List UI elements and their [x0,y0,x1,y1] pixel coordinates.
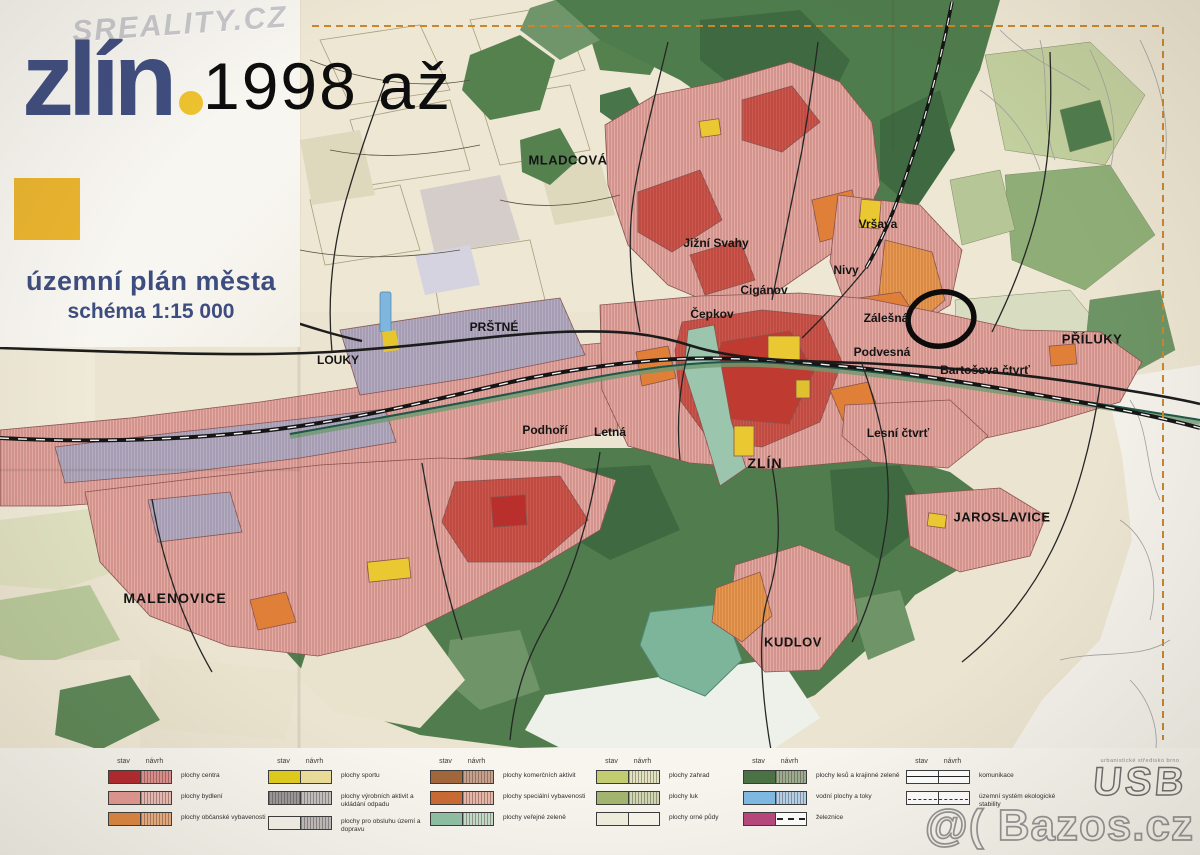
stav-header: stav [596,758,627,765]
navrh-swatch [463,792,494,804]
label-vrsava: Vršava [859,217,898,231]
navrh-swatch [463,813,494,825]
legend-item: plochy sportu [268,770,433,784]
navrh-header: návrh [139,758,170,765]
legend-item: plochy lesů a krajinné zeleně [743,770,899,784]
stav-swatch [431,771,463,783]
label-louky: LOUKY [317,353,359,367]
label-zalesna: Zálešná [864,311,909,325]
navrh-header: návrh [937,758,968,765]
map-poster-photo: MLADCOVÁ Jižní Svahy Vršava Nivy Cigánov… [0,0,1200,855]
stav-swatch-road [907,771,939,783]
legend-head: stav návrh [430,758,492,765]
navrh-swatch [301,817,332,829]
legend-head: stav návrh [596,758,658,765]
navrh-swatch [776,792,807,804]
legend-column-1: stav návrh plochy centra plochy bydlení … [108,758,266,833]
label-nivy: Nivy [833,263,858,277]
legend-head: stav návrh [906,758,968,765]
navrh-swatch [629,792,660,804]
legend-head: stav návrh [108,758,170,765]
stav-header: stav [430,758,461,765]
navrh-header: návrh [627,758,658,765]
label-lesni-ctvrt: Lesní čtvrť [867,426,929,440]
stav-swatch [109,792,141,804]
navrh-header: návrh [461,758,492,765]
legend-column-2: stav návrh plochy sportu plochy výrobníc… [268,758,433,842]
stav-header: stav [108,758,139,765]
zlin-logo-text: zlín [22,22,171,138]
stav-swatch [744,792,776,804]
zlin-logo-dot-icon [179,91,203,115]
stav-swatch [109,771,141,783]
legend-head: stav návrh [268,758,330,765]
legend-item: plochy výrobních aktivit a ukládání odpa… [268,791,433,809]
navrh-swatch [141,792,172,804]
publisher-block: urbanistické středisko brno USB [1075,758,1200,800]
navrh-swatch [141,771,172,783]
legend-label: plochy orné půdy [669,812,719,822]
legend-label: plochy občanské vybavenosti [181,812,266,822]
label-ciganov: Cigánov [740,283,787,297]
plan-title: územní plán města [6,266,296,297]
zlin-logo-square [14,178,80,240]
label-prstne: PRŠTNÉ [470,320,519,334]
legend-item: plochy speciální vybavenosti [430,791,585,805]
legend-label: plochy lesů a krajinné zeleně [816,770,899,780]
legend-item: plochy centra [108,770,266,784]
label-mladcova: MLADCOVÁ [528,153,607,168]
plan-subtitle: schéma 1:15 000 [6,300,296,324]
navrh-swatch-road [939,771,970,783]
stav-header: stav [906,758,937,765]
publisher-logo: USB [1073,764,1200,800]
navrh-swatch [301,771,332,783]
label-podvesna: Podvesná [854,345,911,359]
label-jizni-svahy: Jižní Svahy [683,236,748,250]
legend-label: plochy pro obsluhu území a dopravu [341,816,433,834]
navrh-swatch [301,792,332,804]
label-bartosova: Bartošova čtvrť [940,363,1030,377]
stav-swatch [269,771,301,783]
legend-item: plochy občanské vybavenosti [108,812,266,826]
label-kudlov: KUDLOV [764,635,822,650]
legend-label: plochy centra [181,770,220,780]
legend-item: plochy orné půdy [596,812,719,826]
label-letna: Letná [594,425,626,439]
stav-swatch [269,792,301,804]
navrh-swatch [629,771,660,783]
navrh-swatch [629,813,660,825]
legend-label: železnice [816,812,843,822]
label-malenovice: MALENOVICE [123,590,226,606]
legend-item: plochy pro obsluhu území a dopravu [268,816,433,834]
label-priluky: PŘÍLUKY [1062,332,1123,347]
legend-item: plochy komerčních aktivit [430,770,585,784]
legend-item: komunikace [906,770,1071,784]
legend-item: plochy luk [596,791,719,805]
stav-swatch [269,817,301,829]
navrh-swatch [141,813,172,825]
stav-swatch [431,813,463,825]
label-zlin: ZLÍN [747,455,782,471]
legend-label: plochy výrobních aktivit a ukládání odpa… [341,791,433,809]
legend-label: plochy bydlení [181,791,223,801]
legend-label: plochy komerčních aktivit [503,770,576,780]
zlin-logo: zlín [22,28,203,132]
legend-item: plochy zahrad [596,770,719,784]
legend-label: plochy zahrad [669,770,709,780]
bazos-watermark: @( Bazos.cz [925,801,1194,851]
water-patch [380,292,391,332]
stav-swatch [597,792,629,804]
stav-swatch [431,792,463,804]
label-jaroslavice: JAROSLAVICE [954,510,1051,525]
legend-label: komunikace [979,770,1014,780]
navrh-swatch [463,771,494,783]
legend-item: plochy bydlení [108,791,266,805]
legend-column-3: stav návrh plochy komerčních aktivit plo… [430,758,585,833]
legend-head: stav návrh [743,758,805,765]
navrh-swatch [776,771,807,783]
legend-label: plochy luk [669,791,698,801]
legend-label: plochy sportu [341,770,380,780]
legend-label: plochy speciální vybavenosti [503,791,585,801]
stav-header: stav [743,758,774,765]
label-podhori: Podhoří [522,423,567,437]
legend-column-4: stav návrh plochy zahrad plochy luk ploc… [596,758,719,833]
stav-swatch [744,771,776,783]
stav-swatch [597,813,629,825]
navrh-header: návrh [299,758,330,765]
stav-swatch [744,813,776,825]
legend-label: vodní plochy a toky [816,791,872,801]
stav-swatch [597,771,629,783]
legend-item: železnice [743,812,899,826]
legend-column-5: stav návrh plochy lesů a krajinné zeleně… [743,758,899,833]
year-annotation: 1998 až [203,48,452,124]
legend-label: plochy veřejné zeleně [503,812,566,822]
stav-header: stav [268,758,299,765]
legend-item: vodní plochy a toky [743,791,899,805]
navrh-header: návrh [774,758,805,765]
label-cepkov: Čepkov [690,307,733,321]
navrh-swatch-railway [776,813,807,825]
legend-item: plochy veřejné zeleně [430,812,585,826]
stav-swatch [109,813,141,825]
